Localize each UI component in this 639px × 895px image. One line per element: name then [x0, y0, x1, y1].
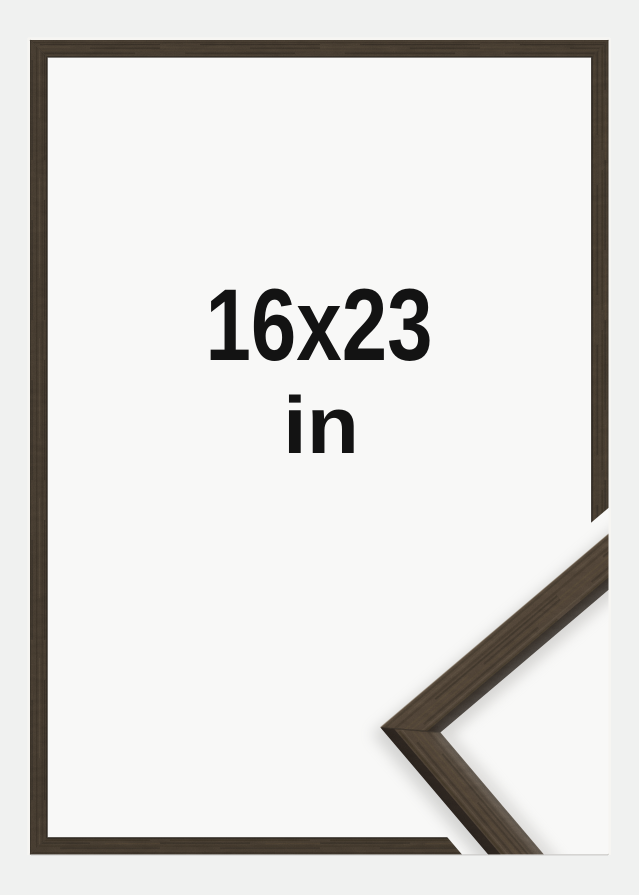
svg-text:in: in — [283, 381, 359, 471]
svg-text:16x23: 16x23 — [206, 268, 433, 382]
